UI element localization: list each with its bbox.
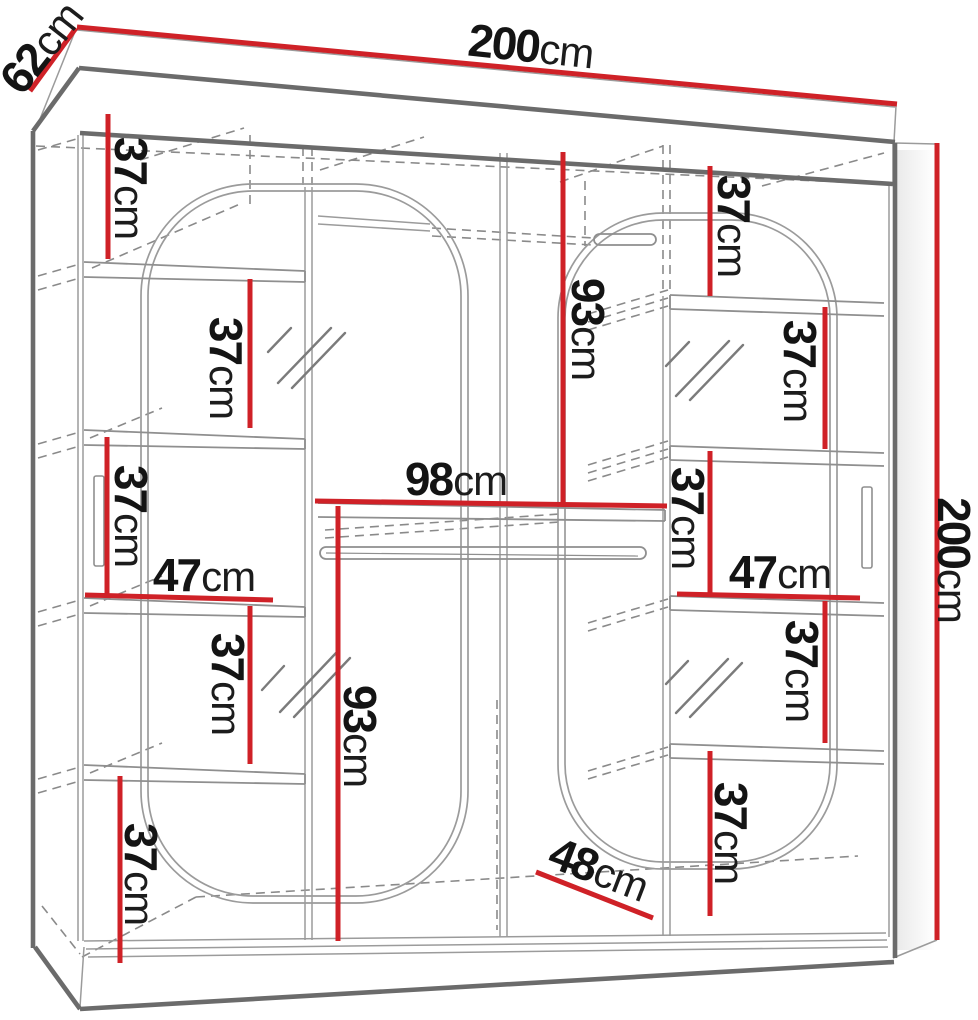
- wardrobe-dimension-diagram: 200cm 62cm 200cm 37cm 37cm 37cm 47cm 37c…: [0, 0, 978, 1020]
- mirror-glass-hatch-marks: [262, 328, 743, 717]
- right-shelf-column: [670, 295, 884, 764]
- cabinet-shadow: [897, 150, 935, 950]
- thin-structure-lines: [36, 29, 937, 1007]
- right-door-handle: [862, 487, 872, 568]
- wardrobe-line-drawing: [0, 0, 978, 1020]
- left-shelf-column: [84, 262, 305, 784]
- cabinet-outline: [33, 68, 895, 1009]
- hanging-rods: [320, 234, 656, 559]
- dimension-lines: [30, 27, 937, 963]
- right-door-mirror: [558, 213, 837, 869]
- left-door-handle: [94, 476, 104, 566]
